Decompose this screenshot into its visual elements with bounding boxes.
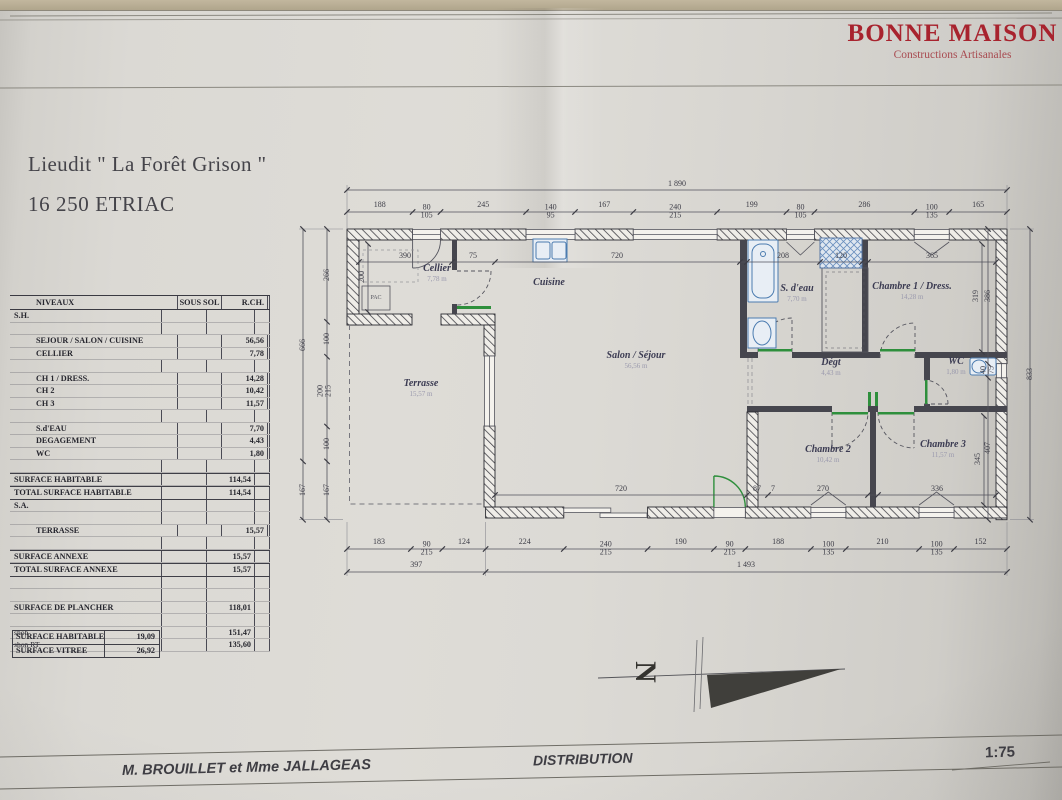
drawing-title: DISTRIBUTION: [533, 750, 633, 769]
table-row: SURFACE ANNEXE15,57: [10, 550, 270, 564]
dim-label: 208: [777, 252, 789, 260]
dim-label: 200: [358, 271, 366, 283]
table-row: CH 311,57: [10, 398, 270, 411]
dim-label: 270: [817, 485, 829, 493]
table-row: TERRASSE15,57: [10, 525, 270, 538]
table-row: S.H.: [10, 310, 270, 323]
pac-label: PAC: [370, 295, 381, 301]
table-row: [10, 512, 270, 525]
scale-label: 1:75: [985, 744, 1015, 762]
room-label-chambre3: Chambre 311,57 m: [920, 439, 966, 459]
dim-label: 188: [772, 538, 784, 546]
north-letter: N: [628, 661, 662, 683]
table-row: [10, 614, 270, 627]
room-label-cuisine: Cuisine: [533, 277, 565, 289]
room-label-chambre2: Chambre 210,42 m: [805, 444, 851, 464]
dim-label: 167: [299, 484, 307, 496]
dim-label: 87: [753, 485, 761, 493]
dim-label: 80 105: [795, 204, 807, 221]
dim-label: 266: [323, 269, 331, 281]
dim-label: 365: [926, 252, 938, 260]
room-label-cellier: Cellier7,78 m: [423, 263, 451, 283]
logo-title: BONNE MAISON: [840, 20, 1062, 48]
dim-label: 666: [299, 339, 307, 351]
project-location: Lieudit " La Forêt Grison ": [28, 152, 267, 177]
dim-label: 100: [323, 438, 331, 450]
open-passage-dashes: [748, 358, 752, 406]
entry-door-swing: [714, 476, 745, 507]
table-header-row: NIVEAUX SOUS SOL R.CH. ETAGE: [10, 295, 270, 310]
table-row: SURFACE HABITABLE 19,09: [13, 631, 159, 644]
door-thresholds: [457, 306, 928, 415]
table-row: CH 210,42: [10, 385, 270, 398]
table-row: CELLIER7,78: [10, 348, 270, 361]
dim-label: 100 135: [926, 204, 938, 221]
logo-subtitle: Constructions Artisanales: [840, 49, 1062, 61]
summary-table: SURFACE HABITABLE 19,09 SURFACE VITREE 2…: [12, 630, 160, 658]
dim-label: 720: [611, 252, 623, 260]
bathtub-icon: [748, 240, 778, 302]
dim-label: 319: [972, 290, 980, 302]
room-label-terrasse: Terrasse15,57 m: [404, 378, 439, 398]
dim-label: 152: [975, 538, 987, 546]
table-row: WC1,80: [10, 448, 270, 461]
dim-label: 1 493: [737, 561, 755, 569]
dim-label: 386: [984, 290, 992, 302]
dim-label: 390: [399, 252, 411, 260]
table-row: CH 1 / DRESS.14,28: [10, 373, 270, 386]
dim-label: 7: [771, 485, 775, 493]
dim-label: 200 215: [317, 385, 334, 397]
dim-label: 397: [410, 561, 422, 569]
room-label-salle-deau: S. d'eau7,70 m: [780, 283, 813, 303]
table-row: SEJOUR / SALON / CUISINE56,56: [10, 335, 270, 348]
dim-label: 407: [984, 442, 992, 454]
table-row: DEGAGEMENT4,43: [10, 435, 270, 448]
dim-label: 124: [458, 538, 470, 546]
window-glyphs: [413, 230, 1007, 518]
dim-label: 190: [675, 538, 687, 546]
dim-label: 165: [972, 201, 984, 209]
table-row: [10, 323, 270, 336]
dim-label: 833: [1026, 368, 1034, 380]
table-row: TOTAL SURFACE HABITABLE114,54: [10, 486, 270, 500]
dim-label: 336: [931, 485, 943, 493]
room-label-wc: WC1,80 m: [946, 356, 965, 376]
dim-label: 75: [469, 252, 477, 260]
dim-label: 1 890: [668, 180, 686, 188]
dim-label: 100 135: [931, 541, 943, 558]
dim-label: 183: [373, 538, 385, 546]
dim-label: 100: [323, 333, 331, 345]
company-logo: BONNE MAISON Constructions Artisanales: [840, 20, 1062, 61]
dim-label: 240 215: [600, 541, 612, 558]
dim-label: 90 215: [724, 541, 736, 558]
photographed-floor-plan: BONNE MAISON Constructions Artisanales L…: [0, 0, 1062, 800]
dim-label: 720: [615, 485, 627, 493]
dim-label: 40 75: [980, 366, 997, 374]
table-row: SURFACE VITREE 26,92: [13, 644, 159, 658]
table-row: [10, 410, 270, 423]
dim-label: 167: [598, 201, 610, 209]
table-row: [10, 537, 270, 550]
dim-label: 188: [374, 201, 386, 209]
washbasin-icon: [748, 318, 776, 348]
dim-label: 240 215: [669, 204, 681, 221]
table-row: SURFACE HABITABLE114,54: [10, 473, 270, 487]
table-row: [10, 460, 270, 473]
areas-table: NIVEAUX SOUS SOL R.CH. ETAGE S.H. SEJOUR…: [10, 295, 270, 652]
room-label-chambre1: Chambre 1 / Dress.14,28 m: [872, 281, 951, 301]
dim-label: 345: [974, 453, 982, 465]
dim-label: 80 105: [421, 204, 433, 221]
dim-label: 90 215: [421, 541, 433, 558]
table-row: S.d'EAU7,70: [10, 423, 270, 436]
dim-label: 120: [835, 252, 847, 260]
dim-label: 199: [746, 201, 758, 209]
table-row: [10, 360, 270, 373]
project-city: 16 250 ETRIAC: [28, 192, 175, 217]
dim-label: 286: [858, 201, 870, 209]
table-row: TOTAL SURFACE ANNEXE15,57: [10, 563, 270, 577]
dim-label: 140 95: [545, 204, 557, 221]
room-label-degagement: Dégt4,43 m: [821, 357, 840, 377]
room-label-salon-sejour: Salon / Séjour56,56 m: [607, 350, 666, 370]
terrace-outline: [350, 325, 485, 504]
dim-label: 100 135: [822, 541, 834, 558]
table-row: [10, 589, 270, 602]
dim-label: 210: [877, 538, 889, 546]
dim-label: 224: [519, 538, 531, 546]
dim-label: 245: [477, 201, 489, 209]
kitchen-sink-icon: [533, 239, 567, 262]
table-row: SURFACE DE PLANCHER118,01: [10, 602, 270, 615]
closet-dressing: [822, 268, 868, 352]
dim-label: 167: [323, 484, 331, 496]
table-row: [10, 577, 270, 590]
table-row: S.A.: [10, 500, 270, 513]
